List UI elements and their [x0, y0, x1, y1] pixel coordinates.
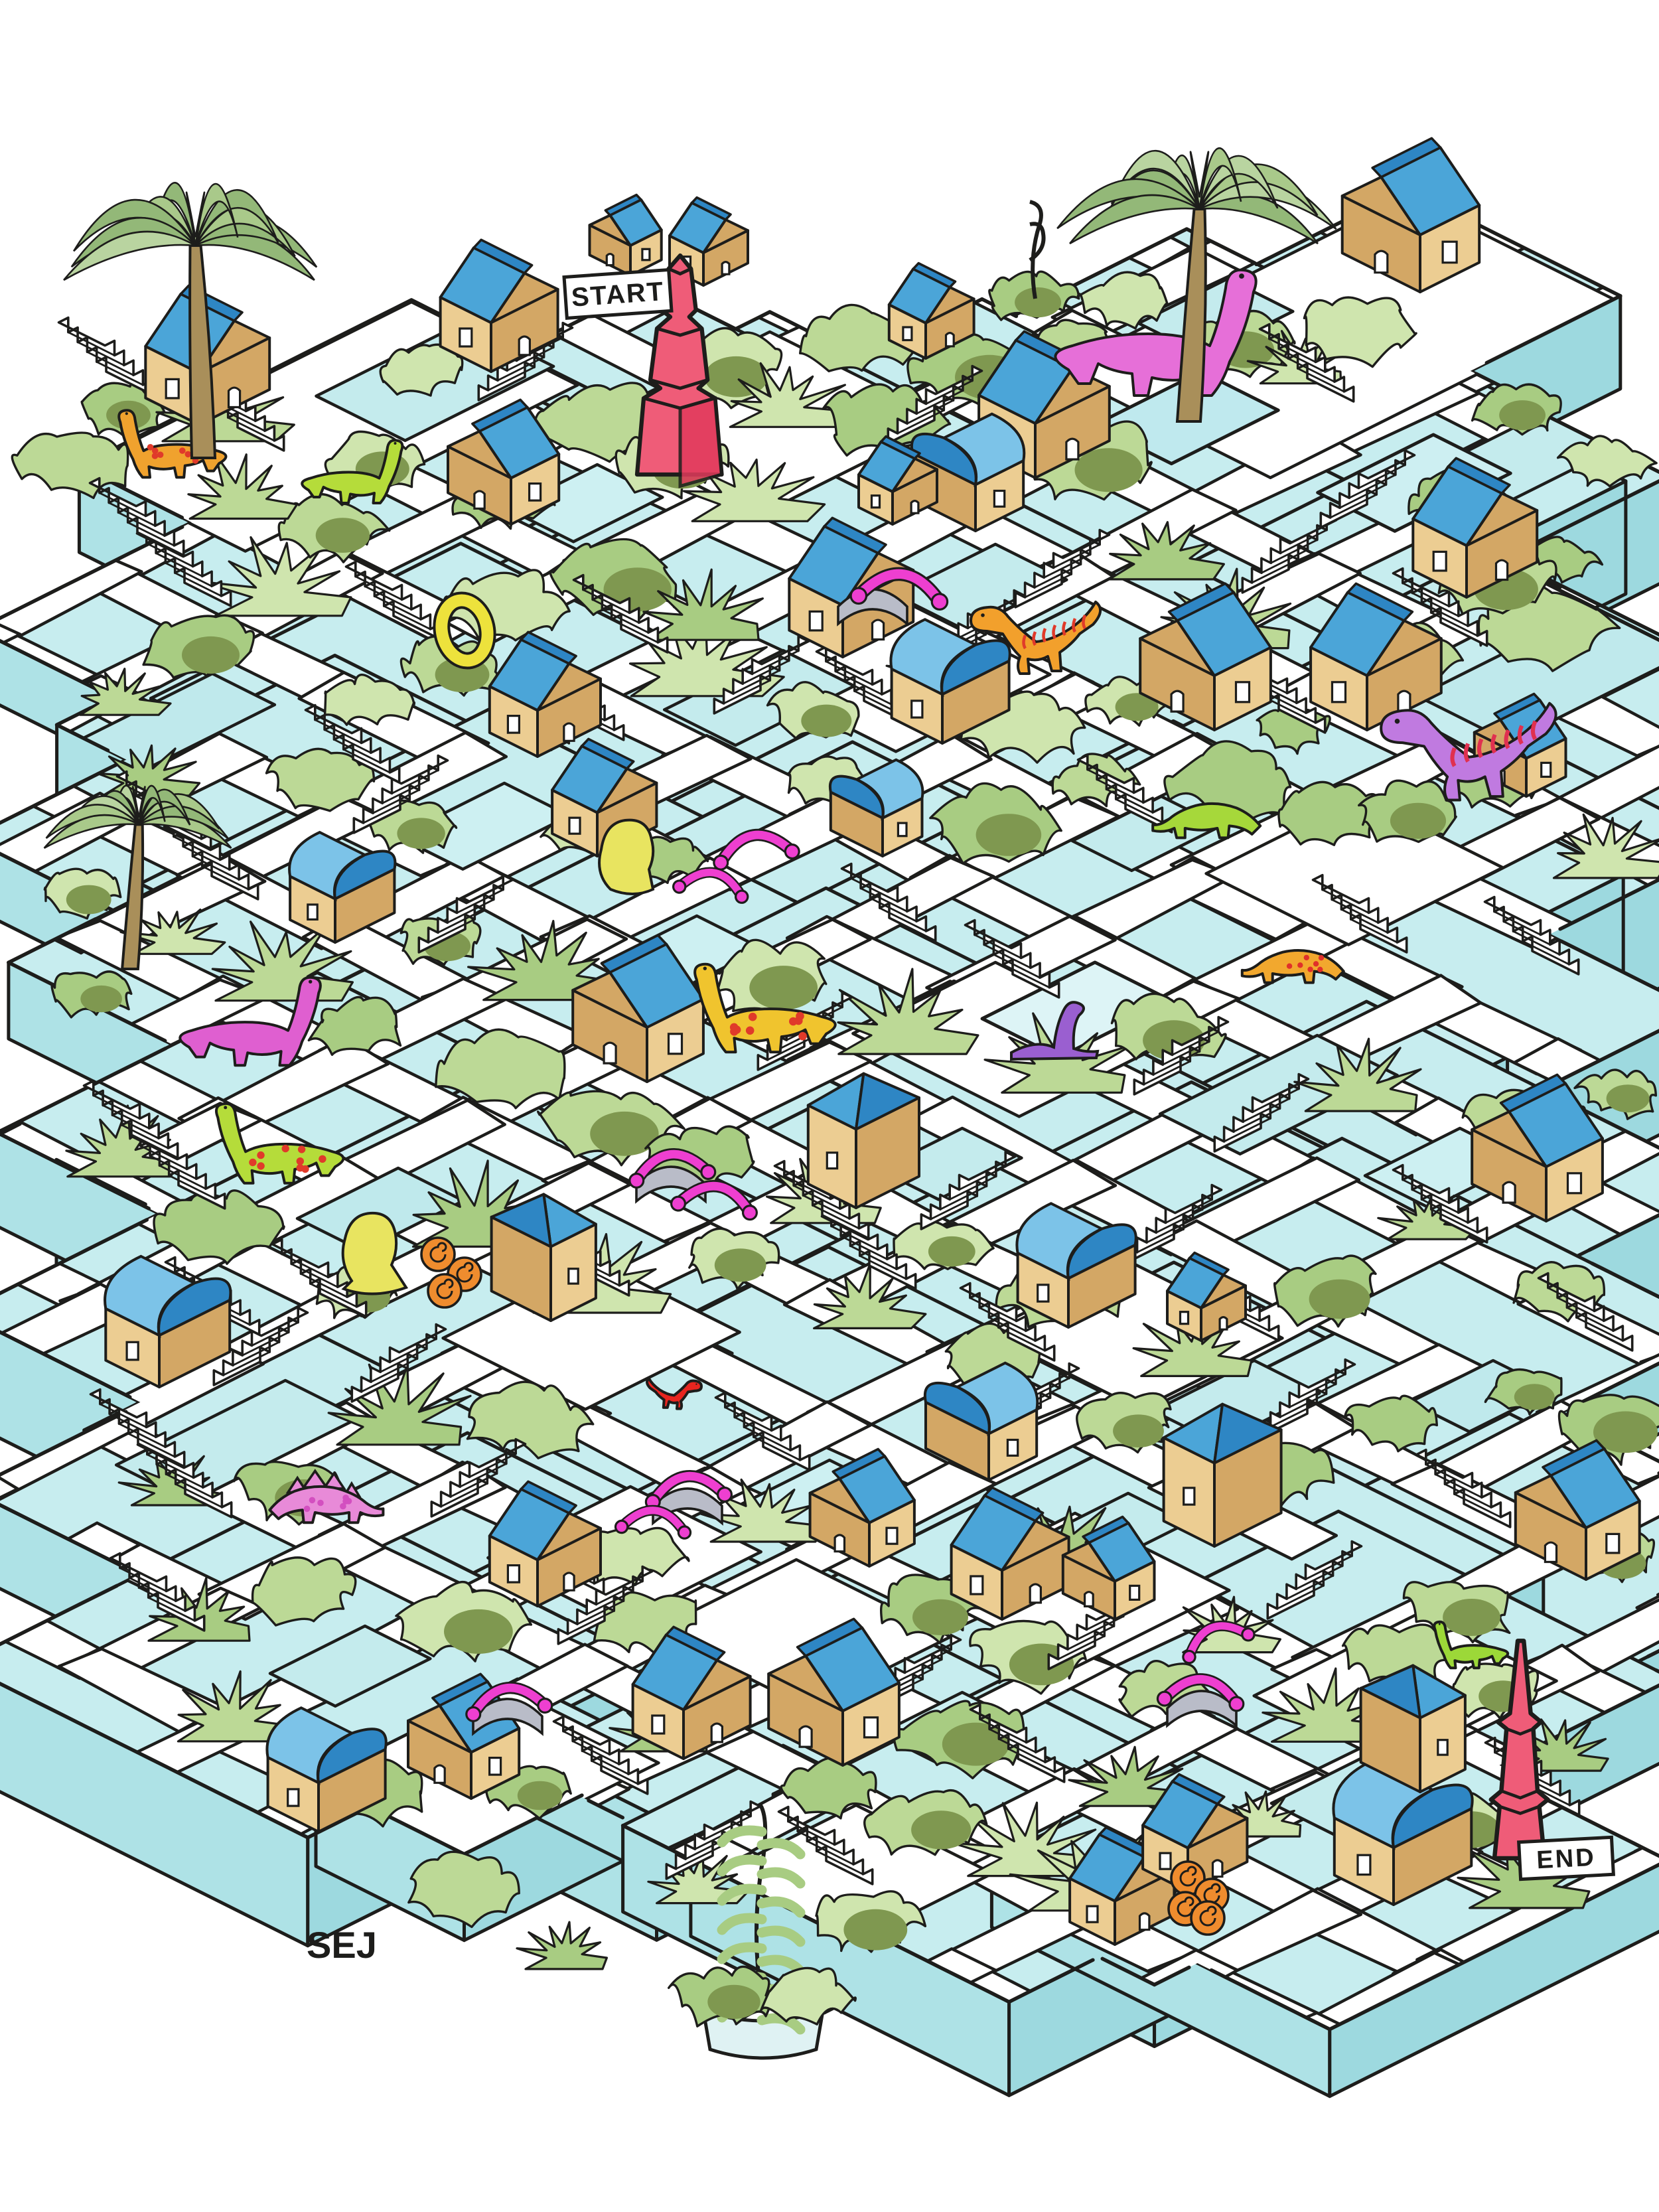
svg-text:SEJ: SEJ: [307, 1924, 377, 1966]
svg-text:END: END: [1536, 1844, 1596, 1875]
